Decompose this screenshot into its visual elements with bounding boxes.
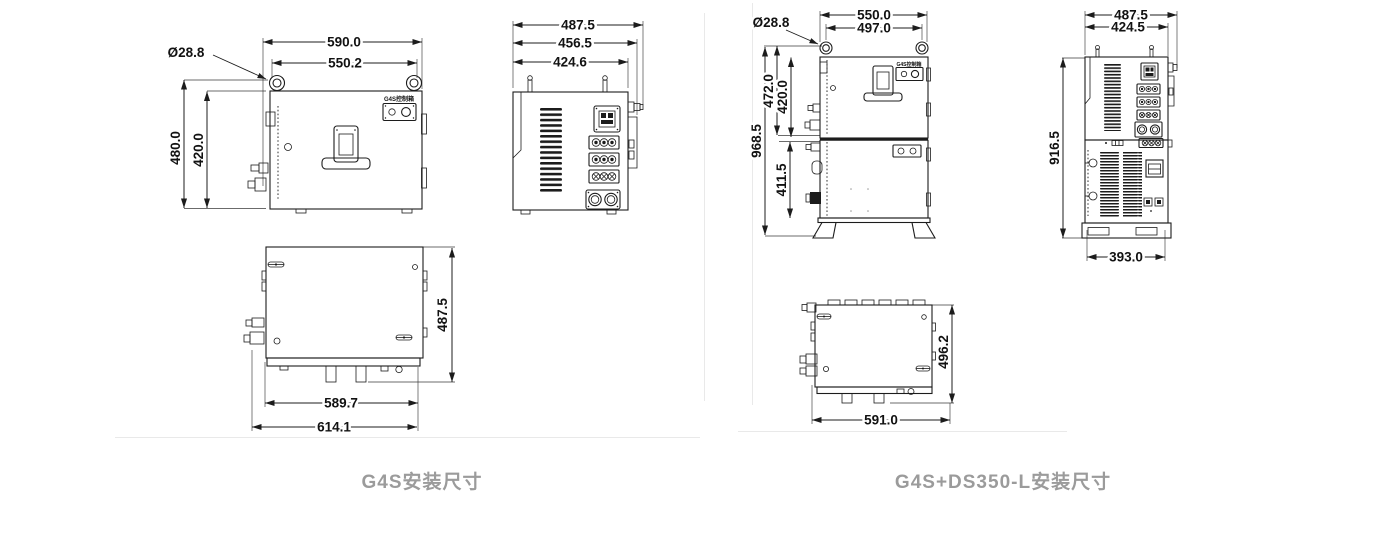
g4s-ds350l-drawing: 550.0 497.0 Ø28.8 968.5 472.0 420.0 411.… xyxy=(749,8,1177,428)
power-socket-plate xyxy=(586,190,620,209)
dim-upper-height-inner: 420.0 xyxy=(775,80,790,114)
handle-icon xyxy=(322,126,370,169)
dim-front-height-inner: 420.0 xyxy=(191,133,206,167)
dim-front-width-inner: 497.0 xyxy=(857,21,891,36)
dim-eyebolt-diameter: Ø28.8 xyxy=(168,45,205,60)
stack-top-view: 496.2 591.0 xyxy=(800,300,954,428)
foot-right xyxy=(912,223,935,239)
dim-top-depth: 487.5 xyxy=(435,298,450,332)
lower-dark-connector xyxy=(806,192,821,204)
dim-base-depth: 393.0 xyxy=(1109,250,1143,265)
display-panel xyxy=(1141,63,1158,80)
stack-side-view: 487.5 424.5 916.5 393.0 xyxy=(1047,8,1177,265)
base-pedestal xyxy=(1082,223,1171,238)
corner-screw-clips xyxy=(268,262,418,344)
lower-left-connector xyxy=(806,143,820,151)
front-left-connector-b xyxy=(805,120,820,130)
g4s-drawing: 590.0 550.2 Ø28.8 480.0 420.0 xyxy=(168,18,643,435)
dim-front-width-outer: 590.0 xyxy=(327,35,361,50)
technical-drawing-canvas: 590.0 550.2 Ø28.8 480.0 420.0 xyxy=(0,0,1400,533)
right-drawing-caption: G4S+DS350-L安装尺寸 xyxy=(803,467,1203,494)
eyebolt-right-icon xyxy=(916,42,928,54)
dim-side-depth-body: 424.6 xyxy=(553,55,587,70)
g4s-name-plate: G4S控制箱 xyxy=(383,95,416,121)
dim-side-depth-body: 424.5 xyxy=(1111,20,1145,35)
side-right-bracket xyxy=(628,102,643,168)
dim-total-height: 968.5 xyxy=(749,124,764,158)
connector-plates xyxy=(589,136,619,183)
left-drawing-caption: G4S安装尺寸 xyxy=(222,467,622,494)
dim-top-width-outer: 614.1 xyxy=(317,420,351,435)
stack-front-view: 550.0 497.0 Ø28.8 968.5 472.0 420.0 411.… xyxy=(749,8,935,239)
mounting-rail xyxy=(817,387,932,403)
dim-top-width: 591.0 xyxy=(864,413,898,428)
vent-grille-lower-2 xyxy=(1123,152,1142,218)
ds350-plate xyxy=(893,145,921,157)
g4s-side-view: 487.5 456.5 424.6 xyxy=(513,18,643,215)
antenna-posts xyxy=(528,76,608,92)
dim-top-depth: 496.2 xyxy=(936,335,951,369)
vent-grille xyxy=(540,108,562,194)
box-label-text: G4S控制箱 xyxy=(384,95,414,103)
power-socket-plate xyxy=(1135,122,1162,137)
ds350-side-details xyxy=(1085,150,1163,218)
dim-eyebolt-diameter: Ø28.8 xyxy=(753,15,790,30)
front-left-connector-a xyxy=(251,163,268,173)
dim-lower-height: 411.5 xyxy=(774,163,789,197)
dim-upper-height-outer: 472.0 xyxy=(761,74,776,108)
eyebolt-right-icon xyxy=(407,76,422,91)
dim-top-width-body: 589.7 xyxy=(324,396,358,411)
dim-side-depth-outer: 487.5 xyxy=(561,18,595,33)
g4s-top-view: 487.5 589.7 614.1 xyxy=(244,247,455,435)
eyebolt-left-icon xyxy=(820,42,832,54)
corner-screw-clips xyxy=(817,314,930,372)
display-panel xyxy=(594,106,620,132)
vent-grille-upper xyxy=(1104,64,1121,131)
side-right-bracket xyxy=(1168,63,1177,106)
antenna-posts xyxy=(1096,46,1154,58)
vent-grille-lower-1 xyxy=(1100,152,1119,218)
eyebolt-left-icon xyxy=(270,76,285,91)
dim-front-width-inner: 550.2 xyxy=(328,56,362,71)
dim-front-height-outer: 480.0 xyxy=(168,131,183,165)
g4s-name-plate: G4S控制箱 xyxy=(896,61,923,81)
dim-side-height: 916.5 xyxy=(1047,131,1062,165)
ribbed-edge xyxy=(828,300,925,305)
dim-side-depth-mid: 456.5 xyxy=(558,36,592,51)
dimension-drawing-page: { "colors": { "line": "#1c1c1c", "captio… xyxy=(0,0,1400,533)
front-left-connector-a xyxy=(808,104,820,112)
mounting-rail xyxy=(267,358,420,382)
foot-left xyxy=(813,223,836,239)
top-left-connectors xyxy=(244,318,264,344)
connector-plates xyxy=(1137,84,1160,120)
g4s-front-view: 590.0 550.2 Ø28.8 480.0 420.0 xyxy=(168,35,427,214)
